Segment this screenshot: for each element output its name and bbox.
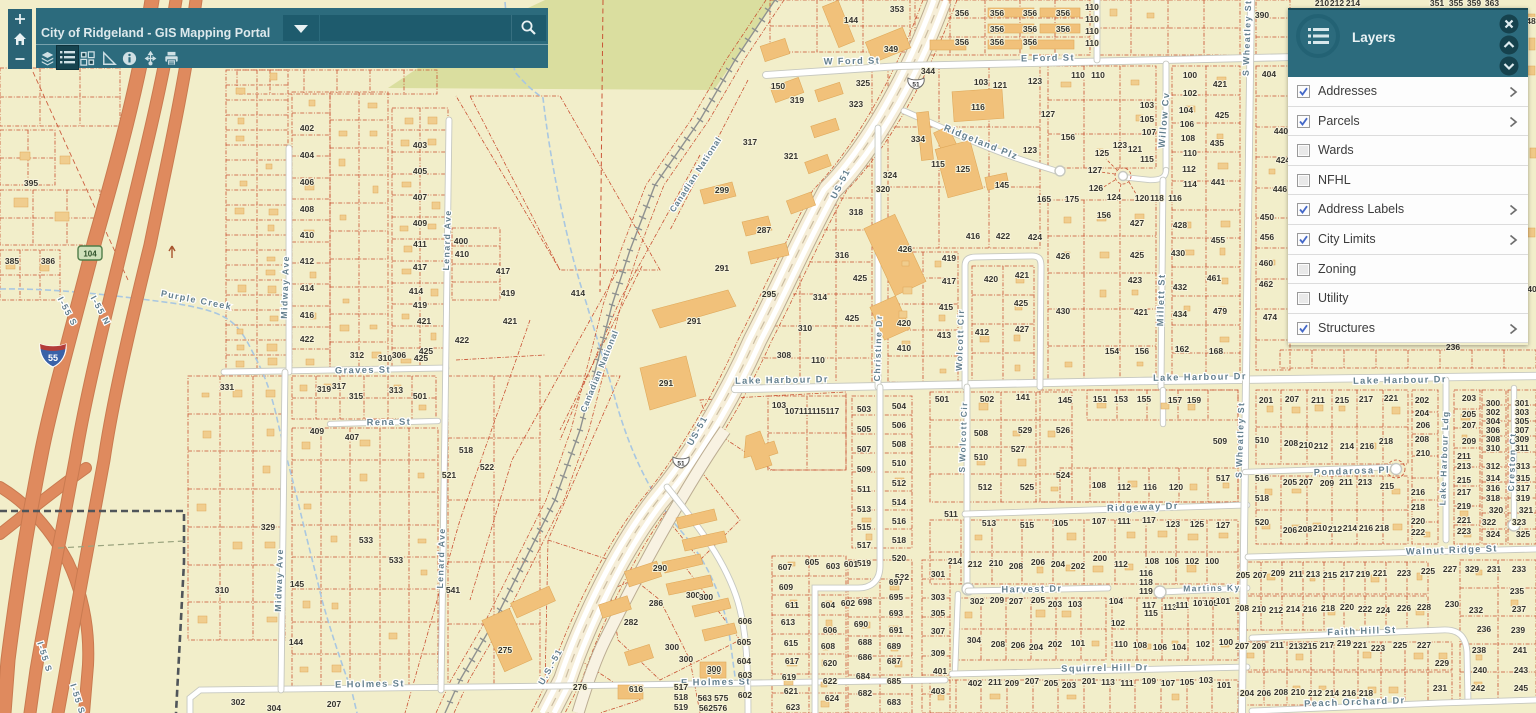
- svg-text:216: 216: [1411, 487, 1425, 497]
- svg-text:304: 304: [267, 703, 281, 713]
- svg-text:329: 329: [261, 522, 275, 532]
- svg-text:100: 100: [1183, 70, 1197, 80]
- svg-text:235: 235: [1510, 586, 1524, 596]
- svg-text:410: 410: [897, 343, 911, 353]
- svg-text:349: 349: [884, 44, 898, 54]
- svg-text:209: 209: [1320, 478, 1334, 488]
- svg-text:214: 214: [1340, 441, 1354, 451]
- svg-text:412: 412: [975, 327, 989, 337]
- svg-text:217: 217: [1340, 569, 1354, 579]
- svg-text:205: 205: [1283, 477, 1297, 487]
- svg-text:225: 225: [1393, 640, 1407, 650]
- svg-text:215: 215: [1303, 641, 1317, 651]
- svg-text:690: 690: [854, 619, 868, 629]
- svg-text:241: 241: [1513, 645, 1527, 655]
- svg-text:290: 290: [653, 563, 667, 573]
- svg-text:212: 212: [1330, 0, 1344, 8]
- svg-text:204: 204: [1240, 688, 1254, 698]
- svg-text:407: 407: [345, 432, 359, 442]
- svg-text:206: 206: [1416, 420, 1430, 430]
- svg-text:40: 40: [1527, 284, 1536, 294]
- svg-text:121: 121: [1128, 144, 1142, 154]
- svg-text:308: 308: [777, 350, 791, 360]
- svg-text:414: 414: [571, 288, 585, 298]
- svg-text:317: 317: [743, 137, 757, 147]
- svg-text:512: 512: [978, 482, 992, 492]
- svg-text:512: 512: [892, 478, 906, 488]
- svg-text:602: 602: [738, 690, 752, 700]
- svg-text:291: 291: [687, 316, 701, 326]
- svg-text:413: 413: [937, 330, 951, 340]
- svg-text:432: 432: [1173, 282, 1187, 292]
- svg-text:104: 104: [83, 250, 97, 259]
- svg-text:121: 121: [993, 80, 1007, 90]
- svg-text:422: 422: [455, 335, 469, 345]
- svg-text:202: 202: [1415, 395, 1429, 405]
- svg-text:102: 102: [1183, 88, 1197, 98]
- svg-text:228: 228: [1417, 602, 1431, 612]
- svg-text:108: 108: [1145, 556, 1159, 566]
- svg-text:104: 104: [1109, 596, 1123, 606]
- svg-text:221: 221: [1353, 640, 1367, 650]
- svg-text:688: 688: [858, 637, 872, 647]
- svg-text:520: 520: [1255, 517, 1269, 527]
- svg-text:123: 123: [1113, 140, 1127, 150]
- svg-text:611: 611: [785, 600, 799, 610]
- svg-text:118: 118: [1150, 193, 1164, 203]
- svg-text:218: 218: [1411, 502, 1425, 512]
- svg-text:312: 312: [350, 350, 364, 360]
- svg-text:325: 325: [1516, 529, 1530, 539]
- svg-text:520: 520: [892, 553, 906, 563]
- svg-text:533: 533: [359, 535, 373, 545]
- svg-text:120: 120: [1135, 193, 1149, 203]
- svg-text:51: 51: [677, 461, 685, 468]
- svg-text:210: 210: [1299, 440, 1313, 450]
- svg-text:208: 208: [1274, 687, 1288, 697]
- svg-text:331: 331: [220, 382, 234, 392]
- svg-text:410: 410: [300, 230, 314, 240]
- svg-text:299: 299: [715, 185, 729, 195]
- svg-text:218: 218: [1359, 688, 1373, 698]
- svg-text:434: 434: [1173, 309, 1187, 319]
- svg-text:511: 511: [944, 509, 958, 519]
- svg-text:304: 304: [967, 635, 981, 645]
- svg-text:102: 102: [1185, 556, 1199, 566]
- svg-text:Harvest Dr: Harvest Dr: [1001, 583, 1062, 594]
- svg-text:100: 100: [1219, 637, 1233, 647]
- svg-text:305: 305: [931, 608, 945, 618]
- svg-text:414: 414: [300, 283, 314, 293]
- svg-text:385: 385: [5, 256, 19, 266]
- svg-text:300: 300: [679, 654, 693, 664]
- svg-text:110: 110: [1071, 70, 1085, 80]
- svg-text:527: 527: [1011, 444, 1025, 454]
- svg-text:220: 220: [1411, 516, 1425, 526]
- svg-text:208: 208: [1009, 561, 1023, 571]
- svg-text:686: 686: [858, 652, 872, 662]
- svg-text:218: 218: [1375, 523, 1389, 533]
- svg-text:230: 230: [1445, 599, 1459, 609]
- svg-text:206: 206: [1031, 557, 1045, 567]
- svg-text:227: 227: [1417, 640, 1431, 650]
- svg-text:302: 302: [231, 697, 245, 707]
- svg-text:239: 239: [1511, 625, 1525, 635]
- svg-text:607: 607: [778, 562, 792, 572]
- svg-text:209: 209: [990, 595, 1004, 605]
- svg-text:601: 601: [844, 559, 858, 569]
- svg-text:415: 415: [939, 302, 953, 312]
- svg-text:320: 320: [876, 184, 890, 194]
- svg-text:112: 112: [1114, 559, 1128, 569]
- svg-text:425: 425: [414, 353, 428, 363]
- svg-text:509: 509: [857, 464, 871, 474]
- svg-text:214: 214: [1286, 604, 1300, 614]
- svg-text:162: 162: [1175, 344, 1189, 354]
- svg-text:417: 417: [942, 276, 956, 286]
- svg-text:Lake Harbour Dr: Lake Harbour Dr: [735, 374, 829, 386]
- svg-text:356: 356: [1056, 24, 1070, 34]
- svg-text:401: 401: [933, 666, 947, 676]
- svg-text:514: 514: [892, 497, 906, 507]
- svg-text:356: 356: [1056, 8, 1070, 18]
- svg-text:222: 222: [1358, 604, 1372, 614]
- svg-text:302: 302: [970, 596, 984, 606]
- svg-text:516: 516: [1255, 473, 1269, 483]
- svg-text:456: 456: [1260, 232, 1274, 242]
- svg-text:102: 102: [1111, 618, 1125, 628]
- svg-text:229: 229: [1435, 658, 1449, 668]
- svg-text:606: 606: [823, 625, 837, 635]
- svg-text:108: 108: [1133, 640, 1147, 650]
- svg-text:204: 204: [1415, 408, 1429, 418]
- svg-text:211: 211: [1270, 640, 1284, 650]
- svg-text:209: 209: [1462, 436, 1476, 446]
- svg-text:615: 615: [784, 638, 798, 648]
- svg-text:205: 205: [1031, 595, 1045, 605]
- svg-text:108: 108: [1181, 133, 1195, 143]
- svg-text:517: 517: [857, 540, 871, 550]
- svg-text:474: 474: [1263, 312, 1277, 322]
- svg-text:116: 116: [1168, 193, 1182, 203]
- svg-text:105: 105: [1180, 677, 1194, 687]
- svg-text:441: 441: [1211, 177, 1225, 187]
- svg-text:214: 214: [948, 556, 962, 566]
- svg-text:282: 282: [624, 617, 638, 627]
- svg-text:422: 422: [996, 231, 1010, 241]
- svg-text:356: 356: [1023, 8, 1037, 18]
- svg-text:356: 356: [990, 37, 1004, 47]
- svg-text:323: 323: [1512, 517, 1526, 527]
- svg-text:417: 417: [496, 266, 510, 276]
- svg-text:216: 216: [1342, 688, 1356, 698]
- svg-text:212: 212: [1314, 441, 1328, 451]
- svg-text:684: 684: [856, 671, 870, 681]
- svg-text:519: 519: [857, 558, 871, 568]
- svg-text:210: 210: [1252, 604, 1266, 614]
- svg-text:112: 112: [1182, 164, 1196, 174]
- svg-text:115: 115: [1144, 608, 1158, 618]
- svg-text:424: 424: [1028, 232, 1042, 242]
- svg-text:356: 356: [1023, 37, 1037, 47]
- svg-text:322: 322: [1482, 517, 1496, 527]
- svg-text:E Holmes St: E Holmes St: [335, 678, 405, 689]
- svg-text:240: 240: [1473, 665, 1487, 675]
- svg-text:359: 359: [1467, 0, 1481, 8]
- svg-text:301: 301: [931, 569, 945, 579]
- svg-text:156: 156: [1097, 210, 1111, 220]
- svg-text:604: 604: [737, 656, 751, 666]
- svg-text:127: 127: [1088, 165, 1102, 175]
- svg-text:101: 101: [1216, 596, 1230, 606]
- svg-text:111: 111: [1175, 600, 1189, 610]
- svg-text:110: 110: [1085, 14, 1099, 24]
- svg-text:508: 508: [892, 439, 906, 449]
- svg-text:206: 206: [1257, 688, 1271, 698]
- svg-text:110: 110: [1183, 148, 1197, 158]
- svg-text:126: 126: [1089, 183, 1103, 193]
- svg-text:114: 114: [1183, 179, 1197, 189]
- svg-text:423: 423: [1128, 275, 1142, 285]
- svg-text:105: 105: [1140, 114, 1154, 124]
- svg-text:219: 219: [1337, 638, 1351, 648]
- svg-text:207: 207: [327, 699, 341, 709]
- svg-text:402: 402: [968, 678, 982, 688]
- svg-text:510: 510: [974, 452, 988, 462]
- svg-text:395: 395: [24, 178, 38, 188]
- svg-text:409: 409: [310, 426, 324, 436]
- svg-text:430: 430: [1056, 306, 1070, 316]
- svg-text:105: 105: [1054, 518, 1068, 528]
- svg-text:518: 518: [459, 445, 473, 455]
- svg-text:425: 425: [1014, 298, 1028, 308]
- svg-text:215: 215: [1380, 481, 1394, 491]
- svg-text:351: 351: [1430, 0, 1444, 8]
- svg-text:300: 300: [665, 642, 679, 652]
- svg-text:517: 517: [674, 682, 688, 692]
- svg-text:517: 517: [1216, 473, 1230, 483]
- svg-text:Graves St: Graves St: [335, 365, 391, 376]
- svg-text:209: 209: [1271, 568, 1285, 578]
- svg-text:501: 501: [413, 391, 427, 401]
- svg-text:150: 150: [771, 81, 785, 91]
- svg-text:208: 208: [1235, 603, 1249, 613]
- svg-text:516: 516: [892, 516, 906, 526]
- svg-text:225: 225: [1421, 566, 1435, 576]
- svg-text:533: 533: [389, 555, 403, 565]
- svg-text:220: 220: [1340, 602, 1354, 612]
- svg-text:461: 461: [1207, 273, 1221, 283]
- svg-text:103: 103: [1199, 675, 1213, 685]
- svg-text:207: 207: [1009, 596, 1023, 606]
- svg-text:522: 522: [480, 462, 494, 472]
- svg-text:154: 154: [1105, 346, 1119, 356]
- svg-text:102: 102: [1196, 639, 1210, 649]
- svg-text:403: 403: [931, 686, 945, 696]
- svg-text:221: 221: [1373, 568, 1387, 578]
- svg-text:356: 356: [990, 24, 1004, 34]
- svg-text:213: 213: [1306, 569, 1320, 579]
- svg-text:687: 687: [887, 656, 901, 666]
- svg-text:204: 204: [1029, 642, 1043, 652]
- svg-text:157: 157: [1168, 395, 1182, 405]
- svg-text:201: 201: [1259, 395, 1273, 405]
- svg-text:604: 604: [821, 600, 835, 610]
- svg-text:419: 419: [501, 288, 515, 298]
- svg-text:207: 207: [1253, 570, 1267, 580]
- svg-text:231: 231: [1487, 564, 1501, 574]
- svg-text:208: 208: [1415, 434, 1429, 444]
- svg-text:426: 426: [898, 244, 912, 254]
- svg-text:231: 231: [1433, 683, 1447, 693]
- svg-text:Lake Harbour Dr: Lake Harbour Dr: [1353, 374, 1447, 386]
- svg-text:104: 104: [1179, 105, 1193, 115]
- svg-text:116: 116: [971, 102, 985, 112]
- svg-text:609: 609: [779, 582, 793, 592]
- svg-text:291: 291: [659, 378, 673, 388]
- svg-text:323: 323: [849, 99, 863, 109]
- svg-text:55: 55: [48, 353, 58, 363]
- svg-text:123: 123: [1028, 76, 1042, 86]
- svg-text:211: 211: [1289, 569, 1303, 579]
- svg-text:213: 213: [1358, 477, 1372, 487]
- svg-text:211: 211: [1311, 395, 1325, 405]
- svg-text:E Ford St: E Ford St: [1021, 53, 1075, 64]
- svg-text:Lenard Ave: Lenard Ave: [435, 527, 447, 589]
- svg-text:412: 412: [300, 256, 314, 266]
- svg-text:300: 300: [699, 592, 713, 602]
- svg-text:203: 203: [1462, 393, 1476, 403]
- svg-text:689: 689: [887, 641, 901, 651]
- svg-text:479: 479: [1213, 306, 1227, 316]
- svg-text:419: 419: [413, 300, 427, 310]
- svg-text:202: 202: [1071, 561, 1085, 571]
- svg-text:363: 363: [1485, 0, 1499, 8]
- svg-text:682: 682: [858, 688, 872, 698]
- svg-text:227: 227: [1443, 564, 1457, 574]
- svg-text:215: 215: [1335, 395, 1349, 405]
- svg-text:221: 221: [1457, 515, 1471, 525]
- svg-text:222: 222: [1411, 527, 1425, 537]
- svg-text:320: 320: [1489, 505, 1503, 515]
- svg-text:107: 107: [1142, 127, 1156, 137]
- svg-text:208: 208: [1298, 524, 1312, 534]
- svg-text:201: 201: [1082, 676, 1096, 686]
- svg-text:695: 695: [889, 592, 903, 602]
- svg-text:210: 210: [1416, 448, 1430, 458]
- svg-text:312: 312: [1486, 461, 1500, 471]
- svg-text:112: 112: [1117, 482, 1131, 492]
- svg-text:300: 300: [707, 664, 721, 674]
- svg-text:211: 211: [1339, 477, 1353, 487]
- svg-text:509: 509: [1213, 436, 1227, 446]
- svg-text:215: 215: [1457, 475, 1471, 485]
- svg-text:145: 145: [995, 180, 1009, 190]
- svg-text:619: 619: [782, 672, 796, 682]
- svg-text:518: 518: [892, 535, 906, 545]
- svg-text:153: 153: [1114, 394, 1128, 404]
- svg-text:208: 208: [991, 639, 1005, 649]
- svg-text:106: 106: [1180, 119, 1194, 129]
- svg-text:515: 515: [1020, 520, 1034, 530]
- svg-text:210: 210: [1291, 687, 1305, 697]
- svg-text:245: 245: [1514, 683, 1528, 693]
- svg-text:207: 207: [1235, 641, 1249, 651]
- svg-text:319: 319: [1516, 493, 1530, 503]
- svg-text:511: 511: [857, 484, 871, 494]
- svg-text:111: 111: [1117, 516, 1131, 526]
- svg-text:286: 286: [649, 598, 663, 608]
- svg-text:207: 207: [1462, 420, 1476, 430]
- svg-text:51: 51: [912, 82, 920, 89]
- svg-text:428: 428: [1173, 220, 1187, 230]
- svg-text:205: 205: [1462, 409, 1476, 419]
- svg-text:622: 622: [823, 676, 837, 686]
- svg-text:218: 218: [1321, 603, 1335, 613]
- svg-text:223: 223: [1397, 568, 1411, 578]
- svg-text:353: 353: [890, 4, 904, 14]
- svg-text:311: 311: [1515, 443, 1529, 453]
- svg-text:421: 421: [1134, 307, 1148, 317]
- svg-text:605: 605: [737, 637, 751, 647]
- svg-text:144: 144: [844, 15, 858, 25]
- svg-text:316: 316: [1486, 483, 1500, 493]
- svg-text:324: 324: [1486, 529, 1500, 539]
- svg-text:175: 175: [1065, 194, 1079, 204]
- svg-text:110: 110: [1085, 26, 1099, 36]
- svg-text:151: 151: [1093, 394, 1107, 404]
- svg-text:426: 426: [1056, 251, 1070, 261]
- svg-text:106: 106: [1165, 556, 1179, 566]
- svg-text:314: 314: [813, 292, 827, 302]
- svg-text:107111115117: 107111115117: [785, 406, 840, 416]
- svg-text:421: 421: [503, 316, 517, 326]
- svg-text:613: 613: [781, 617, 795, 627]
- svg-text:208: 208: [1284, 438, 1298, 448]
- svg-text:233: 233: [1512, 564, 1526, 574]
- svg-text:215: 215: [1323, 570, 1337, 580]
- svg-text:521: 521: [442, 470, 456, 480]
- svg-text:203: 203: [1062, 680, 1076, 690]
- svg-text:422: 422: [300, 334, 314, 344]
- svg-text:541: 541: [446, 585, 460, 595]
- svg-text:106: 106: [1153, 642, 1167, 652]
- svg-text:211: 211: [1457, 451, 1471, 461]
- svg-text:115: 115: [931, 159, 945, 169]
- svg-text:217: 217: [1359, 394, 1373, 404]
- svg-text:145: 145: [290, 579, 304, 589]
- svg-text:116: 116: [1143, 482, 1157, 492]
- svg-text:344: 344: [921, 66, 935, 76]
- svg-text:217: 217: [1320, 640, 1334, 650]
- svg-text:212: 212: [1308, 688, 1322, 698]
- svg-text:406: 406: [300, 177, 314, 187]
- svg-text:242: 242: [1471, 683, 1485, 693]
- svg-text:620: 620: [823, 658, 837, 668]
- svg-text:506: 506: [892, 420, 906, 430]
- svg-text:698: 698: [858, 597, 872, 607]
- svg-text:295: 295: [762, 289, 776, 299]
- svg-text:503: 503: [857, 404, 871, 414]
- svg-text:218: 218: [1379, 436, 1393, 446]
- svg-text:207: 207: [1285, 394, 1299, 404]
- svg-text:315: 315: [349, 391, 363, 401]
- svg-text:309: 309: [931, 648, 945, 658]
- svg-text:313: 313: [389, 385, 403, 395]
- svg-text:212: 212: [1328, 524, 1342, 534]
- svg-text:275: 275: [498, 645, 512, 655]
- svg-text:110: 110: [1114, 639, 1128, 649]
